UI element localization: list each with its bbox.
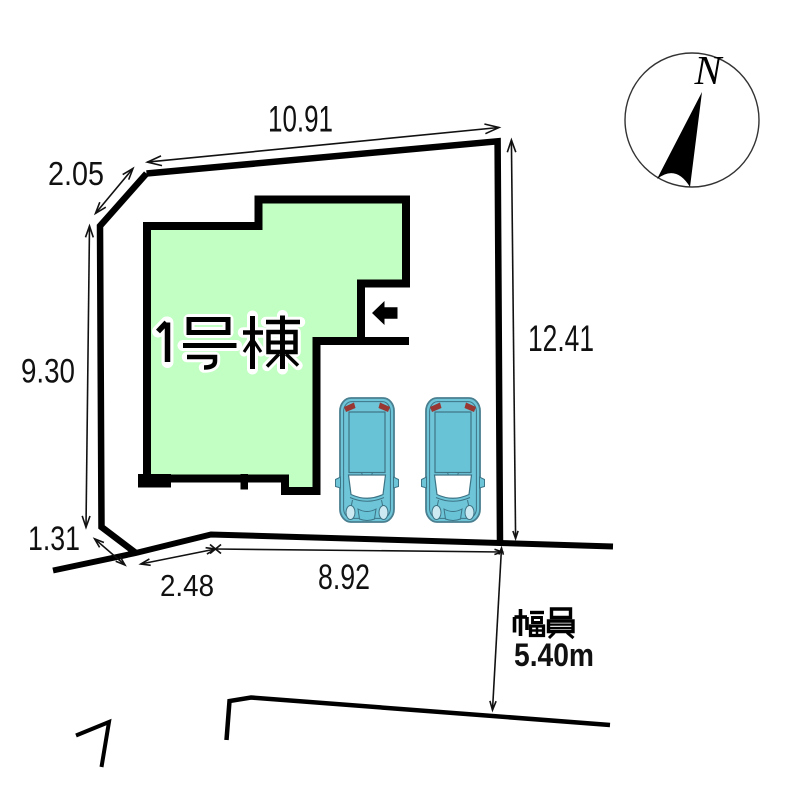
svg-text:2.48: 2.48: [160, 568, 214, 603]
svg-text:N: N: [694, 47, 725, 93]
svg-text:2.05: 2.05: [48, 155, 104, 192]
svg-text:8.92: 8.92: [318, 558, 370, 597]
svg-text:9.30: 9.30: [21, 353, 75, 391]
svg-text:12.41: 12.41: [528, 318, 594, 359]
svg-text:1.31: 1.31: [28, 520, 80, 558]
svg-text:10.91: 10.91: [268, 99, 333, 140]
svg-text:5.40m: 5.40m: [514, 637, 594, 673]
